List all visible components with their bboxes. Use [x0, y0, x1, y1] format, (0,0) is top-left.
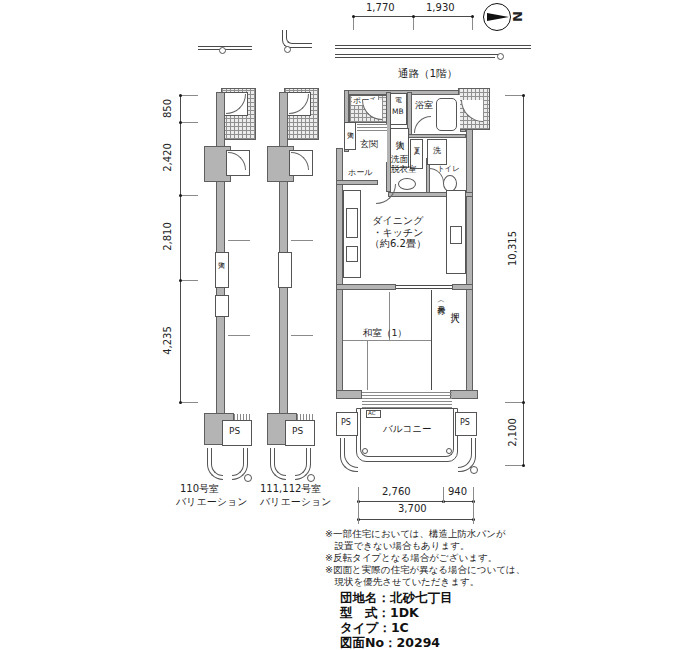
balcony-label: バルコニー	[383, 424, 431, 435]
dim-top-tick-3	[472, 16, 473, 30]
small-closet-label: 物入	[346, 126, 353, 128]
meter-box-label: MB	[392, 108, 404, 117]
walkway-line-3	[335, 54, 498, 55]
info-drawing-no: 図面No：20294	[340, 636, 440, 650]
balcony-drain-left-icon	[362, 448, 368, 454]
shoe-cabinet-label: 下足入	[413, 142, 420, 145]
entrance-step	[357, 124, 387, 133]
dim-top-tick-2	[413, 16, 414, 30]
note-line-4: ※図面と実際の住宅が異なる場合については、	[325, 564, 525, 576]
bath-label: 浴室	[415, 100, 433, 110]
dim-top-dot-3	[471, 15, 474, 18]
strip-a-closet-label: 物入	[217, 256, 224, 258]
dim-right-value-2: 2,100	[507, 413, 518, 453]
strip-b-ps-label: PS	[292, 426, 303, 436]
dining-kitchen-label: ダイニング ・キッチン （約6.2畳）	[370, 215, 426, 250]
dim-left-dot-1	[179, 94, 182, 97]
ps-right-label: PS	[460, 418, 470, 427]
dim-left-value-3: 2,810	[162, 217, 173, 257]
dim-left-dot-4	[179, 279, 182, 282]
dim-top-dot-1	[352, 15, 355, 18]
strip-a-tick-2	[228, 335, 250, 336]
dim-right-value-1: 10,315	[507, 224, 518, 274]
dim-bottom-value-1: 2,760	[382, 486, 411, 497]
meter-box-small-label: 電	[395, 96, 402, 104]
strip-a-ps-label: PS	[229, 426, 240, 436]
dim-bottom-tick-3	[473, 487, 474, 524]
dim-right-ext-1	[505, 95, 523, 96]
dim-left-value-2: 2,420	[162, 138, 173, 178]
strip-b-pipe-corner-2	[286, 30, 312, 44]
strip-a-pipe-line-1	[198, 46, 252, 47]
dim-right-ext-2	[505, 402, 523, 403]
balcony-window-shutter	[362, 392, 452, 408]
kitchen-counter-right-box	[450, 226, 462, 244]
japanese-room-label: 和室（1）	[363, 328, 407, 339]
note-line-1: ※一部住宅においては、構造上防水パンが	[325, 528, 506, 540]
wall-bath-bottom	[407, 134, 466, 138]
walkway-label: 通路（1階）	[398, 67, 457, 79]
dim-bottom-tick-1	[358, 487, 359, 524]
dim-left-ext-2	[180, 122, 198, 123]
walkway-line-1	[335, 45, 531, 46]
dim-left-ext-3	[180, 195, 198, 196]
note-line-3: ※反転タイプとなる場合がございます。	[325, 552, 497, 564]
floor-plan-page: 1,770 1,930 N 通路（1階） 物入 PS 110号室 バリエーション	[0, 0, 700, 650]
dim-left-dot-2	[179, 121, 182, 124]
strip-a-room-no: 110号室	[180, 483, 219, 495]
strip-a-drain-icon	[219, 47, 226, 54]
dim-right-dot-1	[522, 94, 525, 97]
washbasin	[398, 178, 416, 190]
note-line-2: 設置できない場合もあります。	[325, 540, 470, 552]
dim-right-dot-2	[522, 401, 525, 404]
ps-left-label: PS	[341, 418, 351, 427]
wall-dk-washitsu-left	[336, 284, 396, 290]
bathtub	[436, 98, 457, 131]
strip-a-window-box	[215, 295, 229, 317]
strip-b-caption: バリエーション	[260, 496, 331, 508]
dk-washitsu-slider-2	[396, 288, 452, 289]
hall-label: ホール	[348, 168, 372, 177]
oshiire-label: 押入	[450, 305, 460, 307]
dim-right-ext-3	[505, 465, 523, 466]
strip-b-tick-1	[291, 240, 313, 241]
entrance-label: 玄関	[360, 139, 378, 149]
dim-bottom-value-3: 3,700	[398, 503, 427, 514]
info-type: 型 式：1DK	[340, 606, 419, 621]
dim-bottom-line-1	[358, 501, 473, 502]
oshiire-note-label: （天袋付）	[436, 298, 445, 303]
dim-left-ext-1	[180, 95, 198, 96]
washroom-label: 洗面 脱衣室	[391, 155, 417, 175]
wall-washitsu-balcony-left	[336, 390, 362, 399]
walkway-drain-icon	[497, 53, 504, 60]
wall-dk-washitsu-right	[452, 284, 473, 290]
wall-right-outer	[466, 128, 473, 398]
closet-label: 物入	[395, 133, 405, 135]
dim-top-dot-2	[412, 15, 415, 18]
main-drain-bottom-icon	[470, 466, 478, 474]
tatami-line-v2	[367, 340, 368, 390]
kitchen-stove	[346, 246, 358, 262]
dim-top-tick-1	[353, 16, 354, 30]
dim-right-dot-3	[522, 464, 525, 467]
balcony-drain-right-icon	[446, 448, 452, 454]
strip-b-drain-icon	[284, 46, 291, 53]
dim-left-ext-5	[180, 402, 198, 403]
strip-b-window-box	[278, 252, 292, 288]
dim-left-value-4: 4,235	[162, 321, 173, 361]
dim-left-line	[180, 95, 181, 402]
strip-a-caption: バリエーション	[176, 496, 247, 508]
dim-left-ext-4	[180, 280, 198, 281]
strip-a-drain-bottom-icon	[244, 474, 252, 482]
walkway-line-2	[335, 48, 531, 49]
dim-left-dot-3	[179, 194, 182, 197]
strip-a-tick-1	[228, 240, 250, 241]
dim-top-value-1: 1,770	[366, 2, 395, 13]
note-line-5: 現状を優先させていただきます。	[325, 576, 479, 588]
dim-right-line	[523, 95, 524, 465]
strip-b-tick-2	[291, 335, 313, 336]
dim-top-value-2: 1,930	[426, 2, 455, 13]
info-estate-name: 団地名：北砂七丁目	[340, 591, 453, 606]
info-plan-type: タイプ：1C	[340, 621, 409, 636]
dk-washitsu-slider-1	[396, 285, 452, 286]
dim-bottom-value-2: 940	[448, 486, 467, 497]
walkway-line-4	[335, 57, 495, 58]
tatami-line-h1	[343, 340, 431, 341]
wall-washitsu-balcony-right	[450, 390, 478, 399]
compass-north-label: N	[510, 11, 525, 22]
wall-left-outer	[336, 148, 343, 398]
hall-dk-door-arc	[376, 184, 396, 204]
wall-hall-dk	[336, 180, 378, 185]
strip-b-room-no: 111,112号室	[260, 483, 321, 495]
dim-left-value-1: 850	[162, 94, 173, 124]
strip-b-drain-bottom-icon	[307, 474, 315, 482]
oshiire-divider	[431, 290, 432, 390]
dim-bottom-tick-2	[443, 487, 444, 503]
dim-bottom-line-2	[358, 519, 473, 520]
washer-label: 洗	[433, 146, 441, 155]
dim-left-dot-5	[179, 401, 182, 404]
kitchen-sink	[346, 208, 358, 238]
